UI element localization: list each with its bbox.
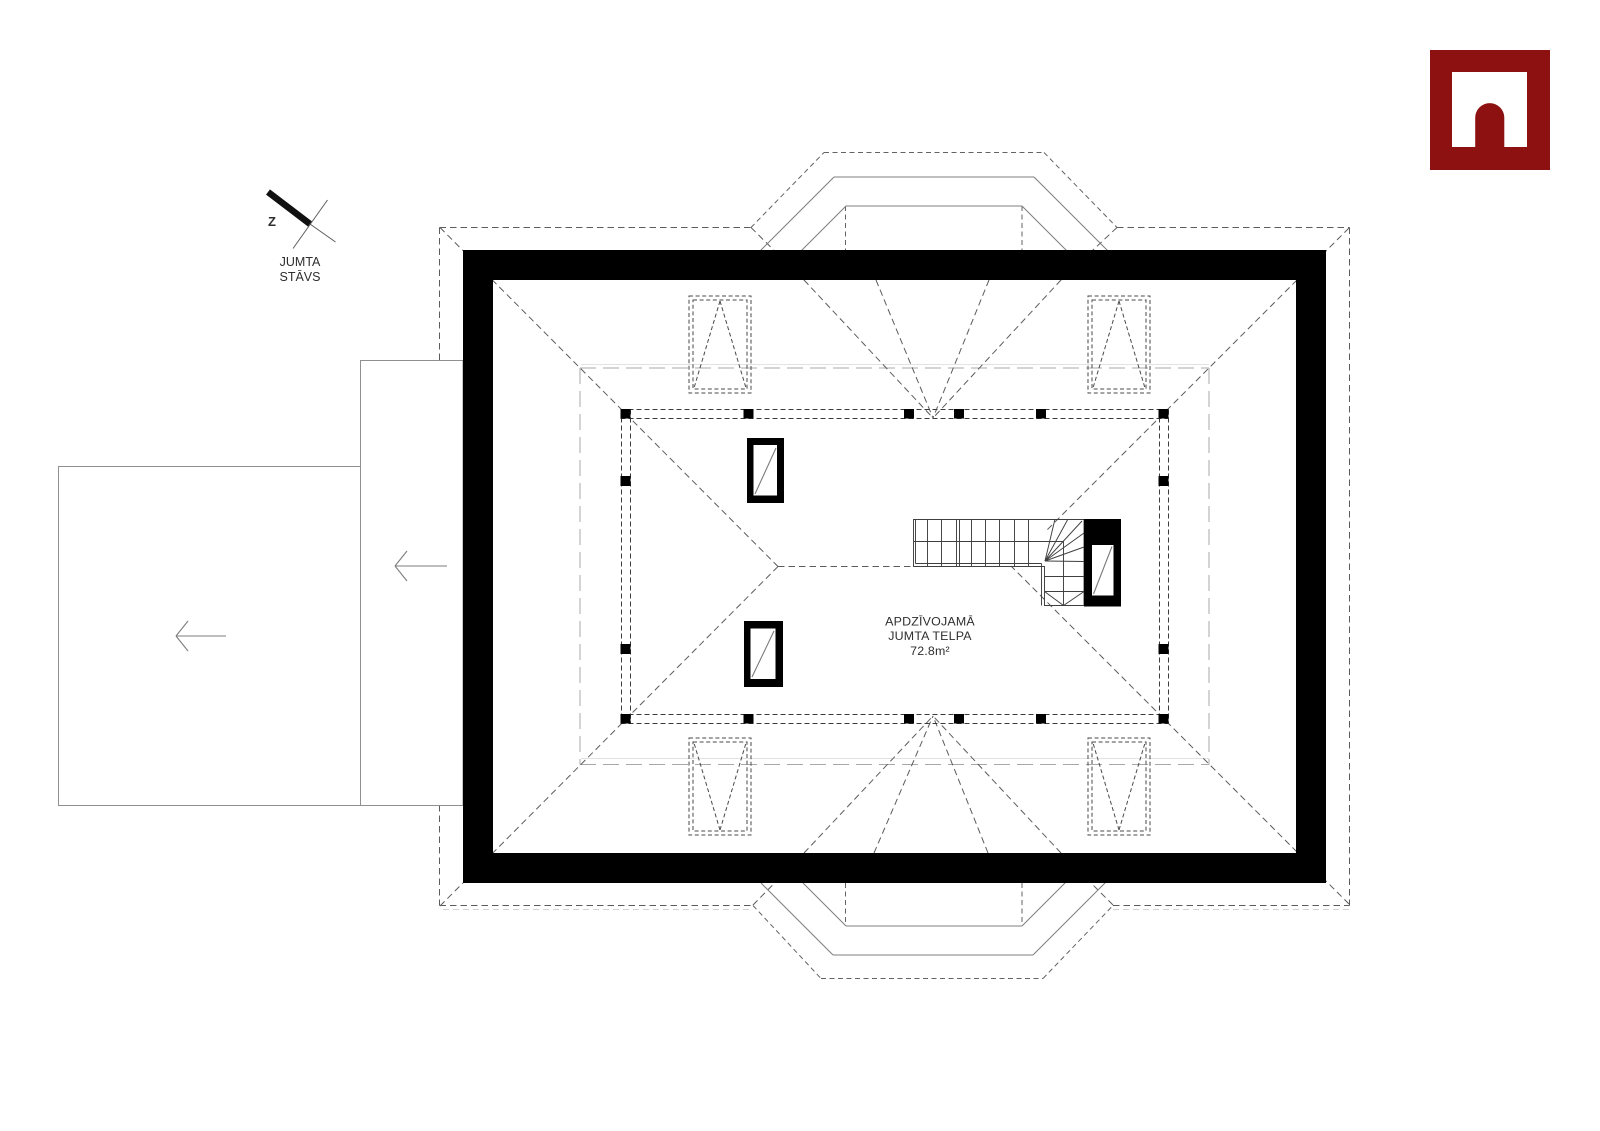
svg-text:72.8m²: 72.8m²: [910, 644, 950, 658]
svg-text:Z: Z: [268, 214, 276, 229]
svg-text:JUMTA: JUMTA: [280, 255, 321, 269]
svg-text:JUMTA TELPA: JUMTA TELPA: [888, 629, 972, 643]
svg-text:APDZĪVOJAMĀ: APDZĪVOJAMĀ: [885, 615, 975, 629]
svg-text:STĀVS: STĀVS: [280, 270, 321, 284]
